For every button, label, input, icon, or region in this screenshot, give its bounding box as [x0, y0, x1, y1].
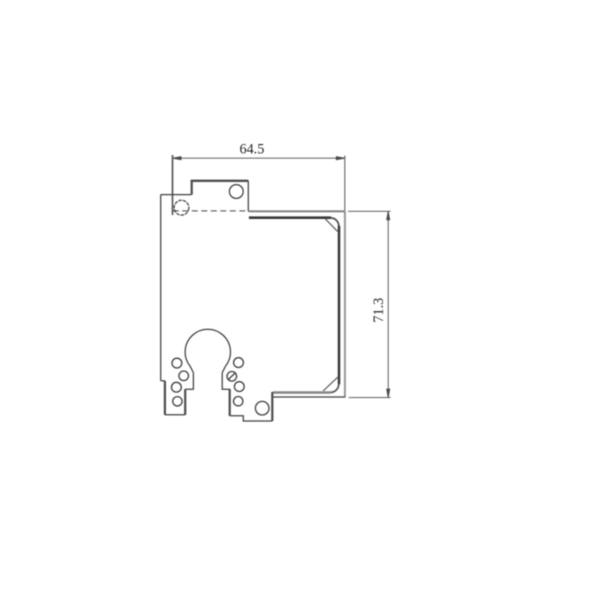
- svg-text:71.3: 71.3: [371, 298, 387, 323]
- svg-text:64.5: 64.5: [239, 141, 264, 157]
